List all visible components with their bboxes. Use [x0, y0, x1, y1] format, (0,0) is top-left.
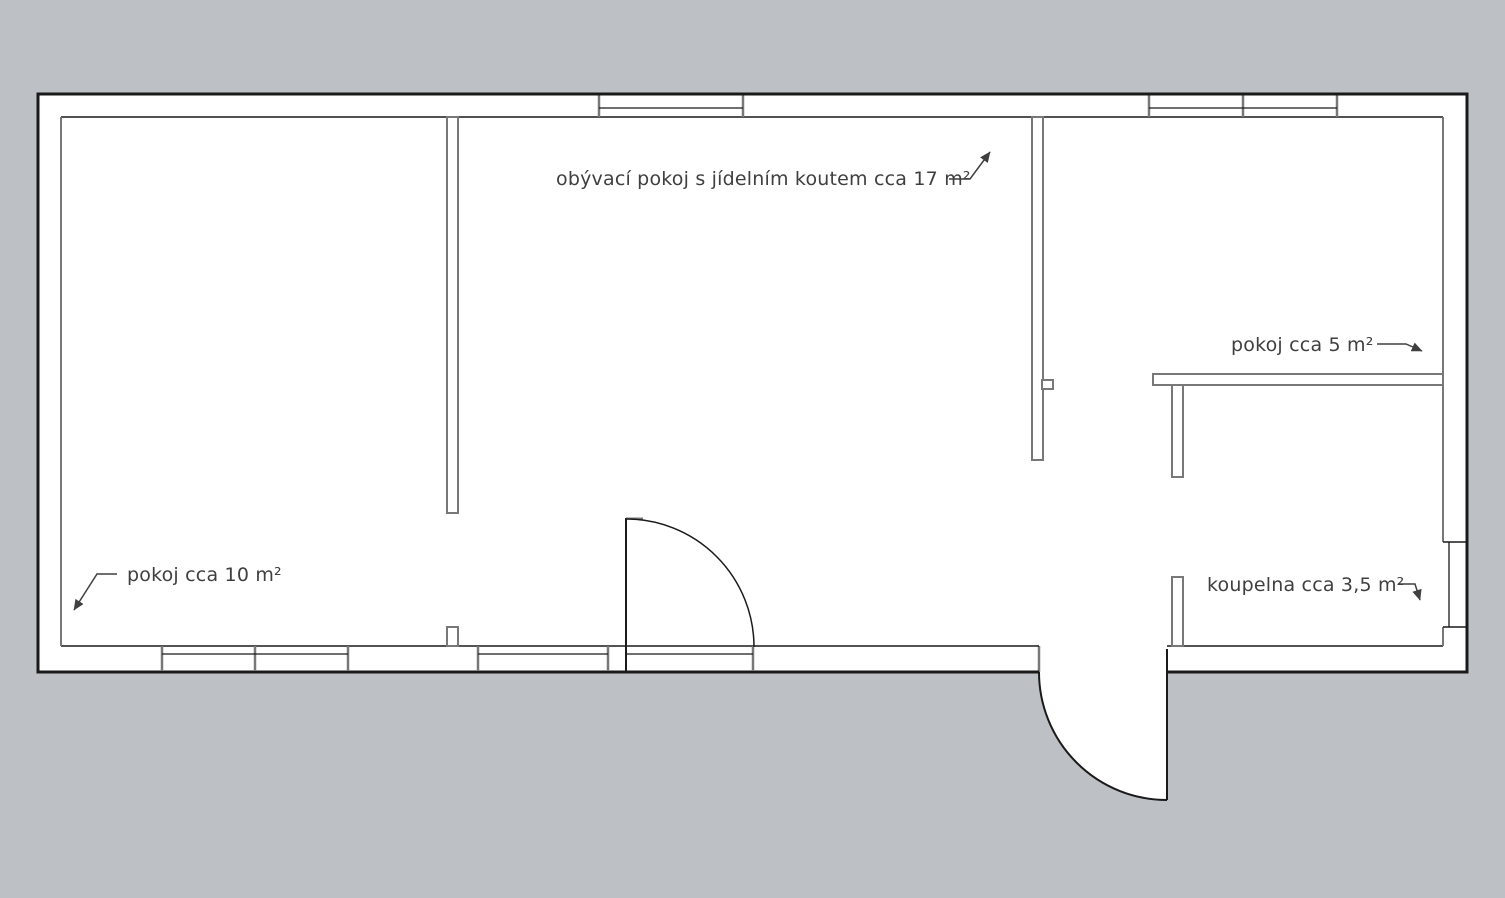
- label-living-room: obývací pokoj s jídelním koutem cca 17 m…: [556, 168, 971, 190]
- label-small-room: pokoj cca 5 m²: [1231, 334, 1374, 356]
- wall-living-hall-stub: [1042, 380, 1053, 389]
- label-bedroom: pokoj cca 10 m²: [127, 564, 282, 586]
- wall-bedroom-living: [447, 117, 458, 513]
- wall-small-room-hall: [1153, 374, 1443, 385]
- wall-hall-stub: [1172, 385, 1183, 477]
- entrance-door-swing: [1039, 672, 1167, 800]
- label-bathroom: koupelna cca 3,5 m²: [1207, 574, 1405, 596]
- wall-bedroom-living-stub: [447, 627, 458, 646]
- wall-living-hall: [1032, 117, 1043, 460]
- floor-plan: obývací pokoj s jídelním koutem cca 17 m…: [0, 0, 1505, 898]
- wall-bathroom: [1172, 577, 1183, 646]
- floor-plan-drawing: [0, 0, 1505, 898]
